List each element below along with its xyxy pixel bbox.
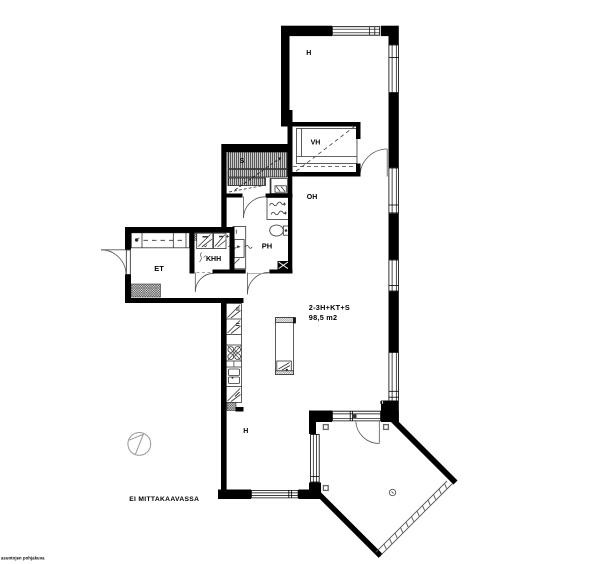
svg-text:H: H [243, 428, 248, 435]
svg-text:OH: OH [307, 194, 318, 201]
svg-text:S: S [240, 158, 245, 165]
svg-text:ET: ET [154, 264, 164, 273]
svg-text:2-3H+KT+S: 2-3H+KT+S [309, 303, 350, 312]
svg-text:asuntojen pohjakuva: asuntojen pohjakuva [1, 556, 45, 561]
svg-text:H: H [306, 50, 311, 57]
svg-text:PH: PH [262, 242, 272, 251]
svg-text:VH: VH [311, 139, 321, 146]
svg-text:KHH: KHH [206, 256, 221, 263]
svg-text:98,5 m2: 98,5 m2 [309, 313, 338, 322]
svg-text:EI MITTAKAAVASSA: EI MITTAKAAVASSA [129, 496, 199, 503]
